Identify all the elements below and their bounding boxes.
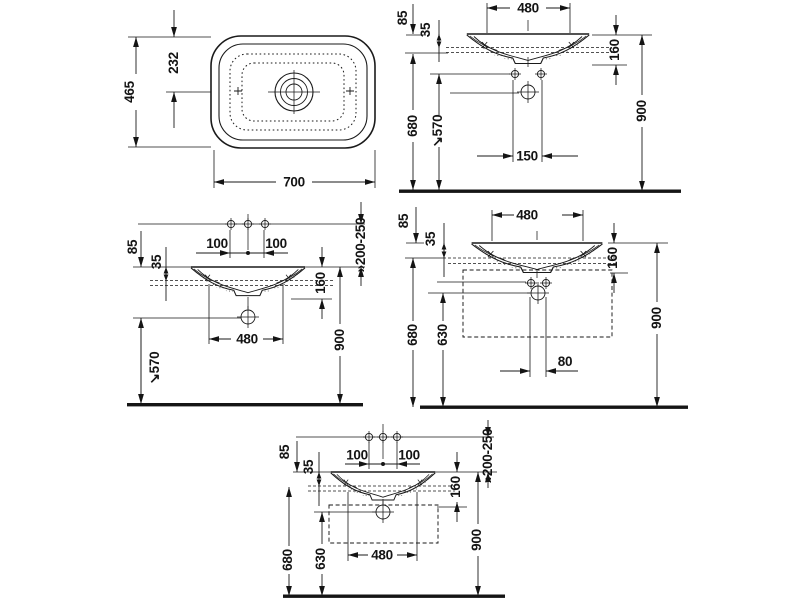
- floor-line: [399, 190, 681, 193]
- tap-hole-icon: [363, 431, 375, 443]
- floor-line: [283, 595, 505, 598]
- dim-rim-to-outlet: 160: [313, 272, 328, 294]
- dim-trap-height: ↘570: [147, 352, 162, 385]
- elevation-wall-mount: 480 85 35 160 680 ↘570 150 900: [395, 1, 681, 193]
- tap-hole-icon: [377, 431, 389, 443]
- dim-rim-to-outlet: 160: [448, 476, 463, 498]
- dim-tap-left: 100: [206, 236, 228, 251]
- dim-outlet-offset: 80: [558, 354, 572, 369]
- dim-depth: 465: [122, 80, 137, 102]
- drawing-sheet: 465 232 700 480 85 35 160 680 ↘570: [0, 0, 800, 600]
- dim-top-to-rim: 85: [125, 239, 140, 254]
- dim-fixing-spacing: 150: [516, 149, 538, 164]
- dim-mount-height: 680: [405, 115, 420, 137]
- elevation-furniture: 480 85 35 160 680 630 80 900: [396, 207, 688, 409]
- drain-plan-icon: [268, 70, 320, 114]
- dim-rim-to-mount: 35: [301, 459, 316, 474]
- center-mark: [381, 462, 385, 466]
- dim-top-to-rim: 85: [396, 213, 411, 228]
- tap-hole-icon: [225, 218, 237, 230]
- dim-tap-left: 100: [346, 448, 368, 463]
- tap-hole-icon: [391, 431, 403, 443]
- washbasin-dimension-drawing: 465 232 700 480 85 35 160 680 ↘570: [0, 0, 800, 600]
- dim-fixing-width: 480: [516, 208, 538, 223]
- elevation-furniture-taps: 100 100 85 35 160 680 630 480 900 »200-2…: [277, 420, 505, 598]
- elevation-deck-taps: 100 100 85 35 160 ↘570 480 900 »200-250: [125, 202, 368, 406]
- dim-basin-width: 480: [371, 548, 393, 563]
- dim-rim-to-mount: 35: [149, 254, 164, 269]
- dim-rim-height: 900: [469, 529, 484, 551]
- dim-rim-to-mount: 35: [423, 231, 438, 246]
- dim-rim-to-outlet: 160: [605, 247, 620, 269]
- dim-top-to-rim: 85: [395, 10, 410, 25]
- dim-trap-height: ↘570: [430, 115, 445, 148]
- dim-rim-to-outlet: 160: [607, 39, 622, 61]
- dim-furniture-height: 630: [313, 548, 328, 570]
- dim-tap-range: »200-250: [480, 429, 495, 484]
- dim-furniture-height: 630: [435, 324, 450, 346]
- dim-tap-right: 100: [265, 236, 287, 251]
- dim-tap-range: »200-250: [353, 218, 368, 273]
- tap-hole-icon: [242, 218, 254, 230]
- dim-width: 700: [283, 175, 305, 190]
- dim-basin-width: 480: [236, 332, 258, 347]
- dim-rim-height: 900: [332, 329, 347, 351]
- dim-center-offset: 232: [166, 52, 181, 74]
- plan-view: 465 232 700: [122, 10, 375, 190]
- dim-tap-right: 100: [398, 448, 420, 463]
- floor-line: [420, 406, 688, 409]
- dim-rim-to-mount: 35: [418, 22, 433, 37]
- dim-top-to-rim: 85: [277, 444, 292, 459]
- dim-fixing-width: 480: [517, 1, 539, 16]
- tap-hole-icon: [259, 218, 271, 230]
- dim-mount-height: 680: [280, 549, 295, 571]
- dim-rim-height: 900: [649, 307, 664, 329]
- center-mark: [246, 251, 250, 255]
- furniture-outline: [463, 270, 612, 337]
- floor-line: [127, 403, 363, 406]
- dim-mount-height: 680: [405, 324, 420, 346]
- dim-rim-height: 900: [634, 100, 649, 122]
